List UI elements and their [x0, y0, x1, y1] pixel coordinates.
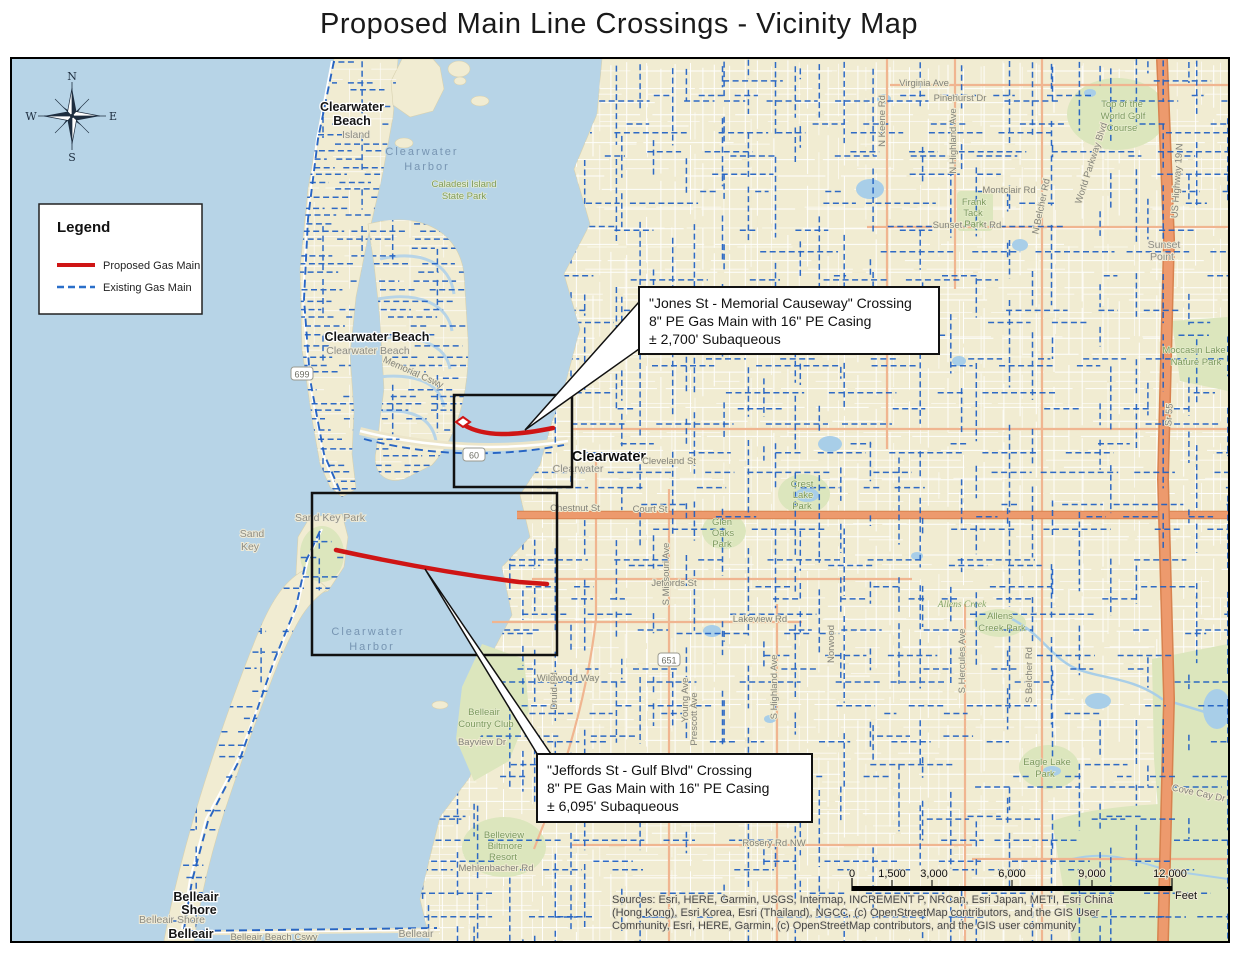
- map-label: Clearwater: [331, 626, 404, 638]
- map-label: Pinehurst Dr: [934, 93, 987, 104]
- attribution-line3: Community, Esri, HERE, Garmin, (c) OpenS…: [612, 920, 1077, 932]
- map-label: Lakeview Rd: [733, 614, 787, 625]
- map-label: Jeffords St: [651, 578, 697, 589]
- map-label: Nature Park: [1171, 357, 1222, 368]
- map-label: Rosery Rd NW: [742, 838, 805, 849]
- map-label: Eagle Lake: [1023, 757, 1071, 768]
- compass-north-label: N: [67, 70, 77, 83]
- compass-south-label: S: [68, 151, 76, 164]
- map-label: Island: [342, 129, 370, 141]
- map-label: Park: [712, 539, 732, 550]
- spoil-island: [432, 701, 448, 709]
- map-label: Clearwater Beach: [326, 345, 410, 357]
- legend: Legend Proposed Gas Main Existing Gas Ma…: [39, 204, 202, 314]
- map-label: Bayview Dr: [458, 737, 506, 748]
- map-label: Point: [1150, 251, 1174, 263]
- map-label: Park: [964, 219, 984, 230]
- map-label: Park: [792, 501, 812, 512]
- spoil-island: [471, 96, 489, 106]
- map-label: Top of the: [1101, 99, 1143, 110]
- map-label: Crest: [791, 479, 814, 490]
- map-label: Belleair Shore: [139, 914, 205, 926]
- attribution-line1: Sources: Esri, HERE, Garmin, USGS, Inter…: [612, 894, 1114, 906]
- map-label: S Belcher Rd: [1024, 647, 1035, 703]
- map-label: Belleview: [484, 830, 524, 841]
- map-label: Course: [1107, 123, 1138, 134]
- jeffords-callout-line3: ± 6,095' Subaqueous: [547, 798, 679, 814]
- sand-key-park-green: [300, 526, 344, 582]
- map-label: Belleair: [398, 928, 434, 940]
- scale-tick-1500: 1,500: [878, 868, 906, 880]
- route-shield-label: 699: [294, 370, 309, 380]
- map-label: Oaks: [712, 528, 734, 539]
- legend-existing-label: Existing Gas Main: [103, 282, 192, 294]
- map-label: Lake: [793, 490, 814, 501]
- map-label: Harbor: [349, 641, 395, 653]
- us19-road: [1162, 59, 1169, 941]
- scale-tick-9000: 9,000: [1078, 868, 1106, 880]
- scale-tick-12000: 12,000: [1153, 868, 1187, 880]
- map-title: Proposed Main Line Crossings - Vicinity …: [0, 8, 1238, 41]
- vicinity-map: 69960651 ClearwaterHarborCaladesi Island…: [12, 59, 1228, 941]
- map-label: Clearwater Beach: [325, 330, 430, 344]
- map-label: Park: [1035, 769, 1055, 780]
- map-frame: 69960651 ClearwaterHarborCaladesi Island…: [10, 57, 1230, 943]
- map-label: Moccasin Lake: [1162, 345, 1225, 356]
- attribution-line2: (Hong Kong), Esri Korea, Esri (Thailand)…: [612, 907, 1100, 919]
- legend-proposed-label: Proposed Gas Main: [103, 260, 200, 272]
- map-label: Allens: [987, 611, 1013, 622]
- caladesi-islet: [448, 61, 470, 77]
- jones-callout-line1: "Jones St - Memorial Causeway" Crossing: [649, 295, 912, 311]
- map-label: Court St: [633, 504, 668, 515]
- map-label: N Keene Rd: [877, 95, 888, 147]
- map-label: Norwood: [826, 625, 837, 663]
- jones-callout-line2: 8" PE Gas Main with 16" PE Casing: [649, 313, 871, 329]
- map-label: Sand Key Park: [295, 512, 366, 524]
- route-shield-60: 60: [463, 448, 485, 461]
- route-shield-699: 699: [291, 367, 313, 380]
- jones-callout-line3: ± 2,700' Subaqueous: [649, 331, 781, 347]
- map-label: Sr 55: [1163, 403, 1176, 426]
- map-label: S Highland Ave: [769, 655, 780, 720]
- map-label: Country Club: [458, 719, 513, 730]
- map-label: N Highland Ave: [948, 108, 959, 173]
- legend-title: Legend: [57, 219, 110, 236]
- map-label: Caladesi Island: [432, 179, 497, 190]
- map-label: Creek Park: [978, 623, 1026, 634]
- map-label: Key: [241, 541, 260, 553]
- map-label: Montclair Rd: [982, 185, 1035, 196]
- map-label: Belleair: [468, 707, 500, 718]
- route-shield-651: 651: [658, 653, 680, 666]
- map-label: Sunset: [1148, 239, 1181, 251]
- map-label: Belleair: [168, 927, 213, 941]
- map-label: Sand: [240, 528, 265, 540]
- page: Proposed Main Line Crossings - Vicinity …: [0, 0, 1238, 956]
- map-label: Resort: [489, 852, 517, 863]
- map-label: Clearwater: [553, 463, 604, 475]
- map-label: State Park: [442, 191, 487, 202]
- route-shield-label: 651: [661, 656, 676, 666]
- compass-east-label: E: [109, 110, 117, 123]
- map-label: Cleveland St: [642, 456, 696, 467]
- map-label: Mehlenbacher Rd: [459, 863, 534, 874]
- scale-tick-6000: 6,000: [998, 868, 1026, 880]
- map-label: Biltmore: [488, 841, 523, 852]
- spoil-island: [454, 77, 466, 85]
- jeffords-callout-line2: 8" PE Gas Main with 16" PE Casing: [547, 780, 769, 796]
- map-label: Allens Creek: [937, 600, 987, 610]
- map-label: Glen: [712, 517, 732, 528]
- map-label: Frank: [962, 197, 987, 208]
- scale-tick-0: 0: [849, 868, 855, 880]
- map-label: S Missouri Ave: [661, 543, 672, 606]
- map-label: Belleair Beach Cswy: [230, 932, 317, 941]
- map-label: Clearwater: [385, 146, 458, 158]
- attribution: Sources: Esri, HERE, Garmin, USGS, Inter…: [612, 894, 1114, 932]
- jones-callout: "Jones St - Memorial Causeway" Crossing …: [639, 287, 939, 354]
- scale-tick-3000: 3,000: [920, 868, 948, 880]
- map-label: Prescott Ave: [689, 692, 700, 745]
- map-label: Clearwater: [320, 100, 384, 114]
- map-label: Virginia Ave: [899, 78, 949, 89]
- map-label: Beach: [333, 114, 371, 128]
- map-label: S Hercules Ave: [957, 629, 968, 694]
- map-label: Harbor: [404, 161, 450, 173]
- map-label: Tack: [963, 208, 983, 219]
- compass-west-label: W: [25, 110, 37, 123]
- map-label: World Golf: [1101, 111, 1146, 122]
- map-label: Belleair: [173, 890, 218, 904]
- jeffords-callout-line1: "Jeffords St - Gulf Blvd" Crossing: [547, 762, 752, 778]
- map-label: Wildwood Way: [537, 673, 600, 684]
- scale-unit-label: Feet: [1175, 890, 1197, 902]
- route-shield-label: 60: [469, 451, 479, 461]
- jeffords-callout: "Jeffords St - Gulf Blvd" Crossing 8" PE…: [537, 754, 812, 822]
